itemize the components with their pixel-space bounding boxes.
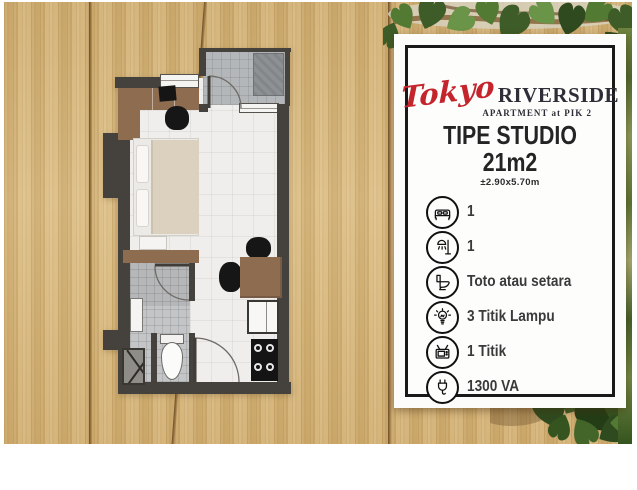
unit-size: 21m2 bbox=[426, 149, 593, 176]
card-frame: Tokyo RIVERSIDE APARTMENT at PIK 2 TIPE … bbox=[405, 45, 615, 397]
shower-icon bbox=[426, 231, 459, 264]
spec-label: 1300 VA bbox=[467, 378, 519, 396]
spec-label: Toto atau setara bbox=[467, 273, 571, 291]
plank-line bbox=[89, 2, 92, 444]
flyer-page: Tokyo RIVERSIDE APARTMENT at PIK 2 TIPE … bbox=[0, 0, 637, 490]
wood-background: Tokyo RIVERSIDE APARTMENT at PIK 2 TIPE … bbox=[4, 2, 632, 444]
unit-dimensions: ±2.90x5.70m bbox=[408, 177, 612, 188]
spec-label: 1 bbox=[467, 238, 475, 256]
bed-icon bbox=[426, 196, 459, 229]
toilet-icon bbox=[426, 266, 459, 299]
tv-icon bbox=[426, 336, 459, 369]
spec-row-tv: 1 Titik bbox=[426, 337, 612, 367]
lightbulb-icon bbox=[426, 301, 459, 334]
spec-list: 1 1 Toto atau setara bbox=[408, 197, 612, 402]
spec-row-power: 1300 VA bbox=[426, 372, 612, 402]
spec-label: 1 bbox=[467, 203, 475, 221]
brand-name-text: RIVERSIDE bbox=[498, 85, 619, 106]
spec-row-bed: 1 bbox=[426, 197, 612, 227]
door-arcs bbox=[103, 48, 303, 400]
spec-row-toilet: Toto atau setara bbox=[426, 267, 612, 297]
power-plug-icon bbox=[426, 371, 459, 404]
info-card: Tokyo RIVERSIDE APARTMENT at PIK 2 TIPE … bbox=[394, 34, 626, 408]
spec-label: 1 Titik bbox=[467, 343, 506, 361]
spec-row-shower: 1 bbox=[426, 232, 612, 262]
floor-plan bbox=[103, 48, 303, 400]
brand-script-text: Tokyo bbox=[401, 72, 495, 113]
spec-label: 3 Titik Lampu bbox=[467, 308, 555, 326]
brand-logo: Tokyo RIVERSIDE bbox=[408, 78, 612, 107]
unit-type-title: TIPE STUDIO bbox=[426, 122, 593, 149]
spec-row-lamp: 3 Titik Lampu bbox=[426, 302, 612, 332]
